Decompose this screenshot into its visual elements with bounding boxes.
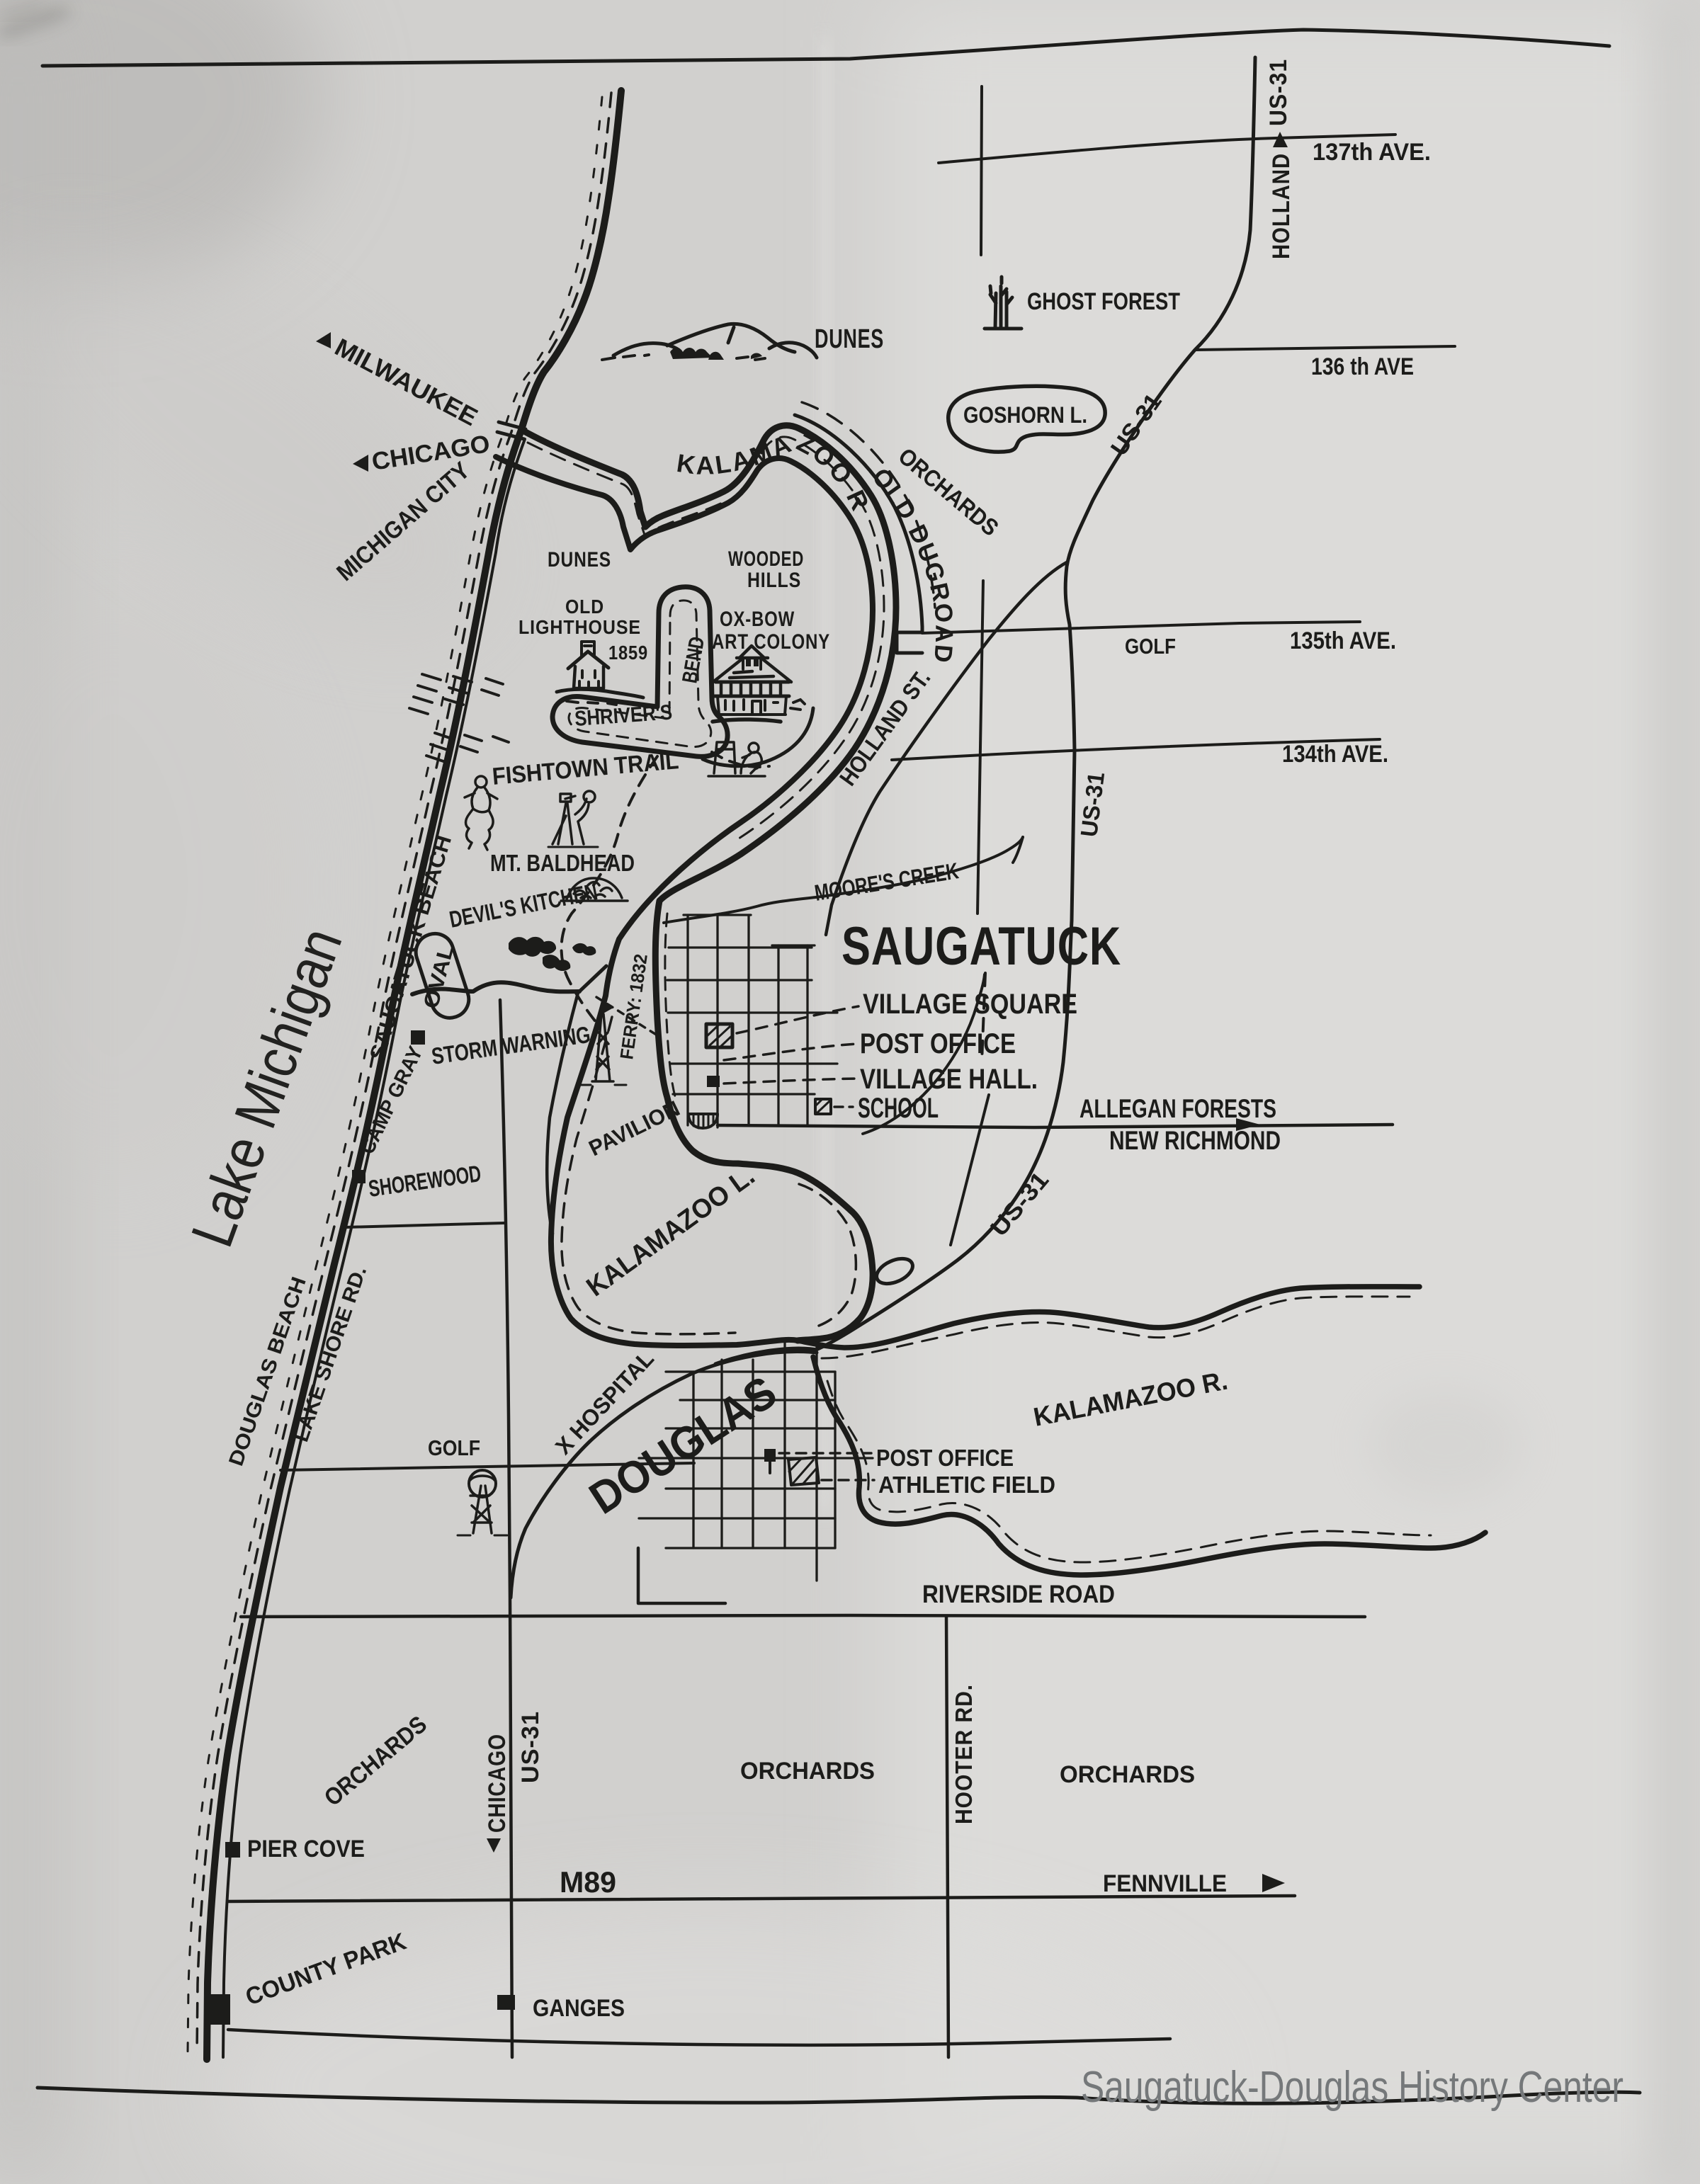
svg-text:LIGHTHOUSE: LIGHTHOUSE xyxy=(518,616,641,638)
svg-text:VILLAGE SQUARE: VILLAGE SQUARE xyxy=(863,989,1077,1020)
svg-text:US-31: US-31 xyxy=(517,1711,544,1783)
svg-text:FENNVILLE: FENNVILLE xyxy=(1103,1870,1227,1897)
svg-text:M89: M89 xyxy=(560,1865,616,1899)
svg-text:OX-BOW: OX-BOW xyxy=(720,608,795,631)
svg-text:DUNES: DUNES xyxy=(548,548,611,571)
svg-text:HILLS: HILLS xyxy=(747,569,801,592)
svg-text:ALLEGAN FORESTS: ALLEGAN FORESTS xyxy=(1079,1094,1276,1123)
svg-text:WOODED: WOODED xyxy=(728,547,804,571)
svg-text:137th AVE.: 137th AVE. xyxy=(1313,139,1431,166)
svg-text:POST OFFICE: POST OFFICE xyxy=(876,1445,1014,1471)
svg-text:RIVERSIDE ROAD: RIVERSIDE ROAD xyxy=(922,1581,1115,1608)
svg-text:HOOTER RD.: HOOTER RD. xyxy=(951,1684,977,1824)
svg-text:NEW RICHMOND: NEW RICHMOND xyxy=(1109,1126,1281,1155)
svg-text:CHICAGO: CHICAGO xyxy=(484,1734,511,1833)
svg-text:GHOST FOREST: GHOST FOREST xyxy=(1027,288,1180,315)
svg-text:DUNES: DUNES xyxy=(815,324,884,354)
svg-text:VILLAGE HALL.: VILLAGE HALL. xyxy=(860,1064,1038,1095)
svg-text:135th AVE.: 135th AVE. xyxy=(1290,627,1396,654)
svg-text:GOLF: GOLF xyxy=(1125,634,1176,659)
svg-text:PIER COVE: PIER COVE xyxy=(247,1836,365,1862)
svg-text:ORCHARDS: ORCHARDS xyxy=(1060,1761,1195,1788)
svg-text:ORCHARDS: ORCHARDS xyxy=(740,1758,875,1785)
svg-text:134th AVE.: 134th AVE. xyxy=(1282,741,1388,768)
svg-text:SCHOOL: SCHOOL xyxy=(858,1093,939,1124)
svg-text:HOLLAND: HOLLAND xyxy=(1268,153,1295,259)
svg-text:GANGES: GANGES xyxy=(533,1995,625,2022)
svg-text:ATHLETIC FIELD: ATHLETIC FIELD xyxy=(878,1472,1055,1498)
svg-text:1859: 1859 xyxy=(608,642,648,664)
svg-text:Saugatuck-Douglas History Cent: Saugatuck-Douglas History Center xyxy=(1081,2063,1623,2112)
svg-text:ART COLONY: ART COLONY xyxy=(712,630,830,654)
svg-text:US-31: US-31 xyxy=(1265,59,1292,126)
svg-text:MT. BALDHEAD: MT. BALDHEAD xyxy=(490,850,635,876)
svg-text:POST OFFICE: POST OFFICE xyxy=(860,1028,1016,1059)
svg-text:GOLF: GOLF xyxy=(428,1435,480,1460)
svg-text:OLD: OLD xyxy=(565,596,604,618)
svg-text:SAUGATUCK: SAUGATUCK xyxy=(841,916,1121,977)
svg-text:GOSHORN L.: GOSHORN L. xyxy=(963,402,1087,428)
svg-text:136 th AVE: 136 th AVE xyxy=(1311,353,1414,380)
